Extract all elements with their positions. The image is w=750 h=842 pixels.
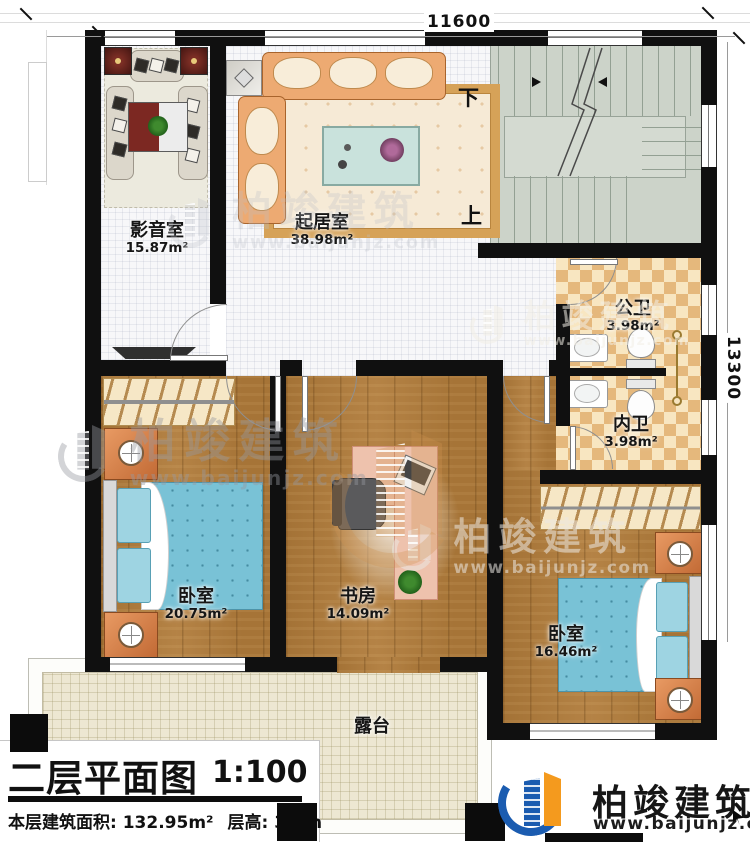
window [548,30,642,46]
watermark-site: www.baijunjz.com [453,557,650,577]
wall [280,360,302,376]
window [701,285,717,335]
lamp-icon [234,68,254,88]
watermark-logo-icon [58,425,118,483]
toilet-tank [626,379,656,389]
wall [85,360,226,376]
wall [655,723,717,740]
room-label-bedroom-right: 卧室 16.46m² [535,626,598,659]
cushion [245,107,279,155]
watermark-logo-icon [168,198,220,248]
cushion [112,96,128,112]
coffee-table [322,126,420,186]
cushion [385,57,433,89]
window [701,400,717,455]
rail-knob [672,396,682,406]
wall [556,376,570,426]
watermark-logo-large [330,430,473,568]
watermark: 柏竣建筑 www.baijunjz.com [58,418,369,490]
door-leaf [570,259,618,265]
speaker-icon [104,47,132,75]
floor-area-label: 本层建筑面积: 132.95m² [8,813,213,833]
lamp-icon [118,622,144,648]
logo-building-blue [524,778,540,826]
wall [701,455,717,525]
speaker-icon [180,47,208,75]
stair-label-down: 下 [458,82,479,112]
media-sofa-top [130,50,184,82]
brand-logo-icon [498,770,578,838]
pillow [117,548,151,603]
wall [85,657,110,672]
room-name: 书房 [327,588,390,607]
wall [175,30,265,46]
watermark: 柏竣建筑 www.baijunjz.com [470,300,690,349]
dim-extension-box [28,62,47,182]
corner-lamp-table [226,60,262,96]
door-leaf [544,376,550,424]
flowers-icon [380,138,404,162]
window [110,657,245,672]
wall [210,46,226,304]
column [10,714,48,752]
lamp-icon [667,687,693,713]
room-area: 20.75m² [165,607,228,621]
table-dot [344,144,351,151]
room-area: 14.09m² [327,607,390,621]
cushion [112,118,128,134]
watermark-logo-icon [470,305,512,345]
frame-line [0,13,750,14]
table-dot [338,160,347,169]
brand-site: www.baijunjz.com [593,814,750,834]
watermark-name: 柏竣建筑 [232,192,440,232]
cushion [112,142,128,158]
logo-building-orange [544,772,561,826]
wall [487,723,530,740]
nightstand [655,532,703,574]
bed-headboard [103,480,117,612]
dim-right-label: 13300 [723,333,743,403]
room-area: 3.98m² [604,435,657,449]
window [530,723,655,740]
door-leaf [170,355,228,361]
title-underline [8,796,302,802]
stair-treads-side [642,118,701,170]
dim-tick-icon [733,32,746,45]
plan-scale: 1:100 [212,755,308,790]
wall [425,30,548,46]
dim-top-label: 11600 [424,12,494,32]
sink [566,380,608,408]
room-name: 露台 [354,718,390,737]
speaker-dot [115,58,121,64]
wall [701,30,717,105]
cushion [329,57,377,89]
sink-basin [574,384,600,403]
dim-tick-icon [20,8,33,21]
room-name: 卧室 [535,626,598,645]
nightstand [104,612,158,658]
watermark: 柏竣建筑 www.baijunjz.com [168,192,440,253]
floor-plan-page: 影音室 15.87m² 起居室 38.98m² 公卫 3.98m² 内卫 3.9… [0,0,750,842]
pillow [656,582,688,632]
speaker-dot [191,58,197,64]
room-name: 内卫 [604,416,657,435]
room-name: 卧室 [165,588,228,607]
room-label-bedroom-left: 卧室 20.75m² [165,588,228,621]
column [277,803,317,841]
window [701,525,717,640]
wall [245,657,337,672]
window [701,105,717,167]
room-label-terrace: 露台 [354,718,390,737]
stair-label-up: 上 [461,200,482,230]
watermark-site: www.baijunjz.com [524,333,690,349]
watermark-name: 柏竣建筑 [524,300,690,332]
cushion [149,58,165,74]
window [105,30,175,46]
stair-arrow-icon [532,77,541,87]
wall [356,360,503,376]
room-label-private-bath: 内卫 3.98m² [604,416,657,449]
pillow [117,488,151,543]
lamp-icon [667,541,693,567]
nightstand [655,678,703,720]
stair-arrow-icon [598,77,607,87]
cushion [273,57,321,89]
living-sofa-top [262,52,446,100]
terrace-doorway-floor [337,657,440,673]
watermark-site: www.baijunjz.com [232,233,440,253]
wall [85,30,101,672]
door-leaf [570,426,576,470]
wall [478,243,701,258]
wall [440,657,487,672]
cushion [134,58,150,74]
cushion [164,58,180,74]
watermark-logo-icon [330,430,473,568]
wall [556,368,666,376]
wall [701,335,717,400]
wall [701,167,717,285]
stair-break-line [528,46,648,180]
dim-line-top [47,36,735,37]
watermark-name: 柏竣建筑 [453,518,650,556]
frame-line [0,22,750,23]
wall [540,470,701,484]
room-area: 16.46m² [535,645,598,659]
room-label-study: 书房 14.09m² [327,588,390,621]
stair-treads-bottom [498,176,638,243]
plant-icon [148,116,168,136]
plan-title: 二层平面图 [8,748,198,802]
window [265,30,425,46]
